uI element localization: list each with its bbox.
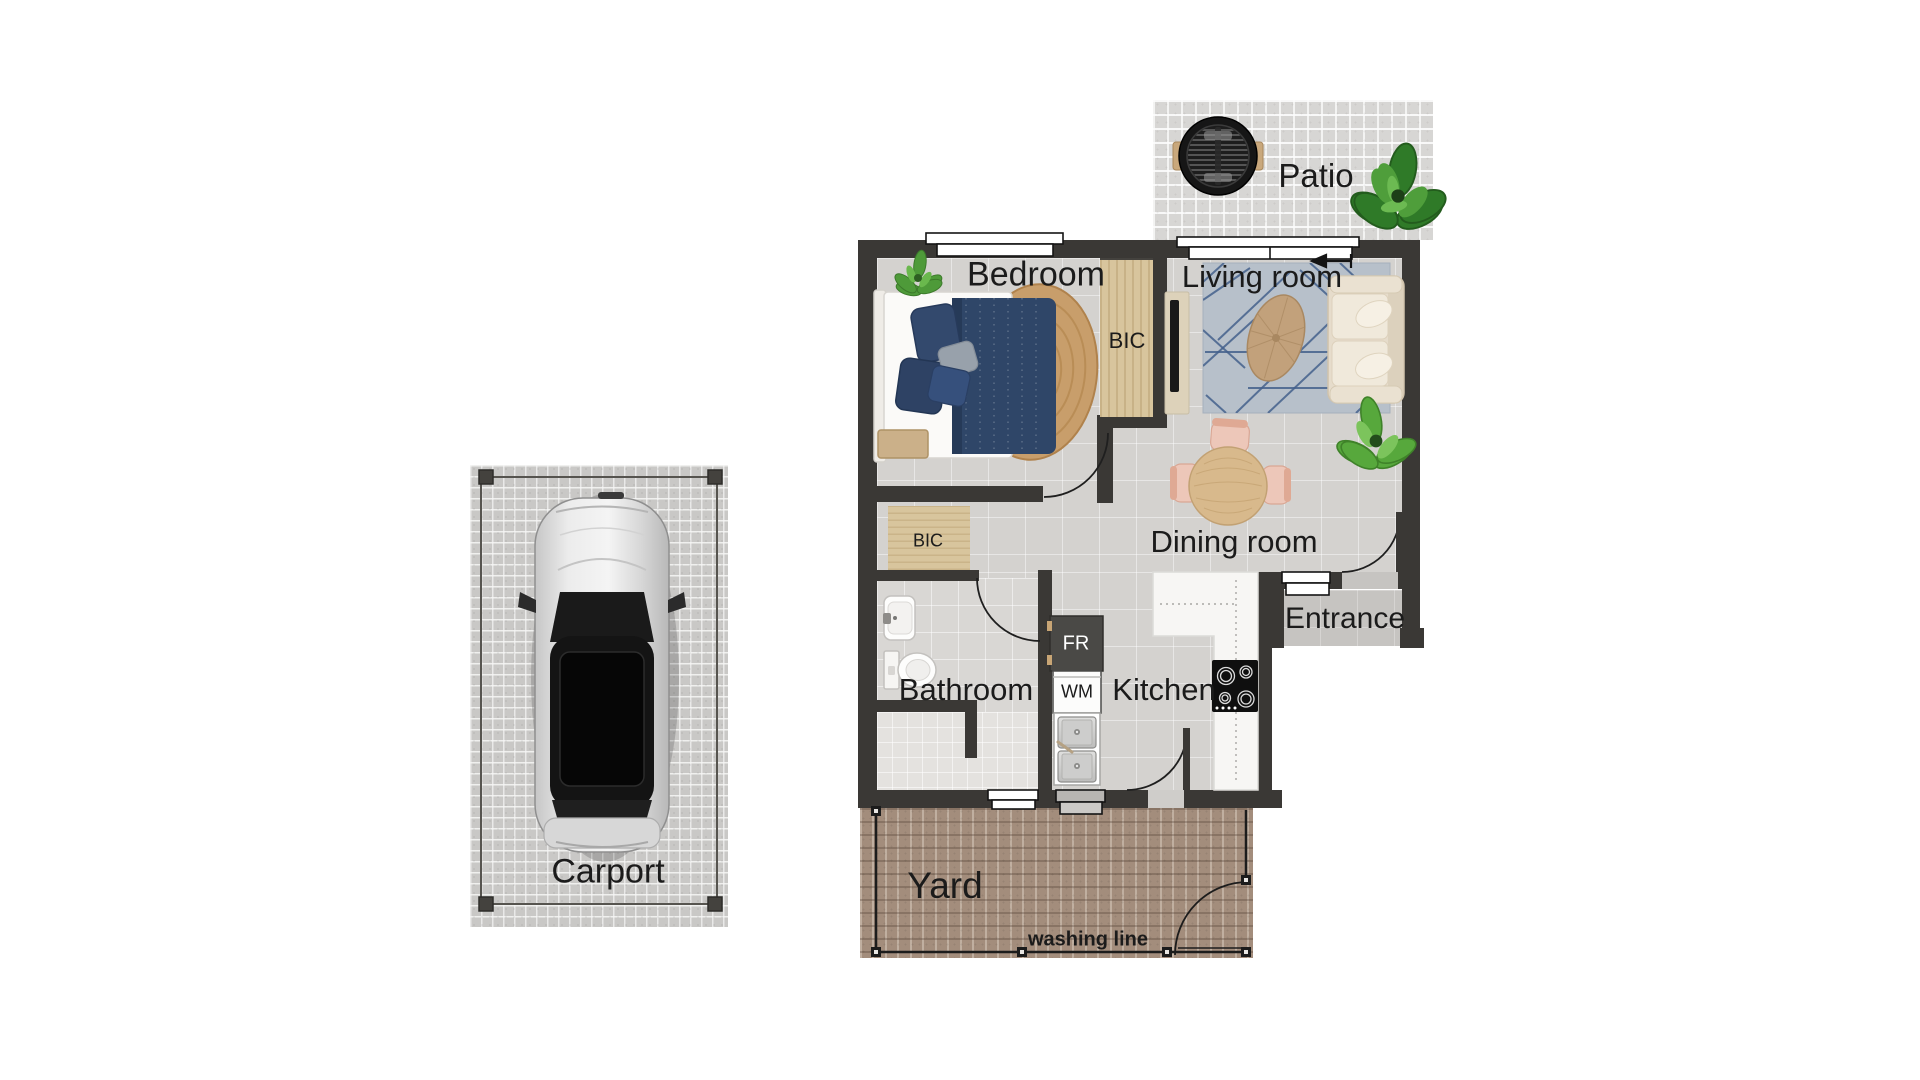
hallway-cupboard-label: BIC (913, 531, 943, 552)
entrance-label: Entrance (1285, 602, 1405, 636)
wall-left (858, 240, 877, 808)
fridge-label: FR (1063, 633, 1090, 656)
wall-bottom (858, 790, 1282, 808)
wall-bathroom-top (867, 570, 979, 581)
wall-bedroom-right-stub (1097, 415, 1113, 503)
dining-room-label: Dining room (1150, 524, 1317, 560)
front-door-opening (1342, 572, 1398, 589)
patio-label: Patio (1278, 157, 1353, 195)
wall-kitchen-right (1258, 572, 1272, 808)
wall-entrance-left (1272, 572, 1284, 648)
kitchen-label: Kitchen (1112, 672, 1215, 708)
living-room-label: Living room (1182, 259, 1342, 295)
bedroom-cupboard-label: BIC (1109, 328, 1146, 354)
floor-plan-scene: Patio Bedroom Living room BIC BIC Dining… (0, 0, 1920, 1080)
yard-label: Yard (907, 865, 982, 907)
carport-label: Carport (551, 853, 664, 892)
wall-bathroom-right (1038, 570, 1052, 795)
washing-line-label: washing line (1028, 929, 1148, 952)
wall-top (858, 240, 1420, 258)
washing-machine-label: WM (1061, 682, 1093, 703)
wall-shower-stub (965, 712, 977, 758)
floor-shower (877, 712, 1038, 790)
bedroom-label: Bedroom (967, 256, 1105, 295)
bathroom-label: Bathroom (899, 672, 1033, 708)
wall-bedroom-living-divider (1153, 240, 1167, 420)
yard-door-opening (1148, 790, 1184, 808)
wall-bedroom-bottom (877, 486, 1043, 502)
